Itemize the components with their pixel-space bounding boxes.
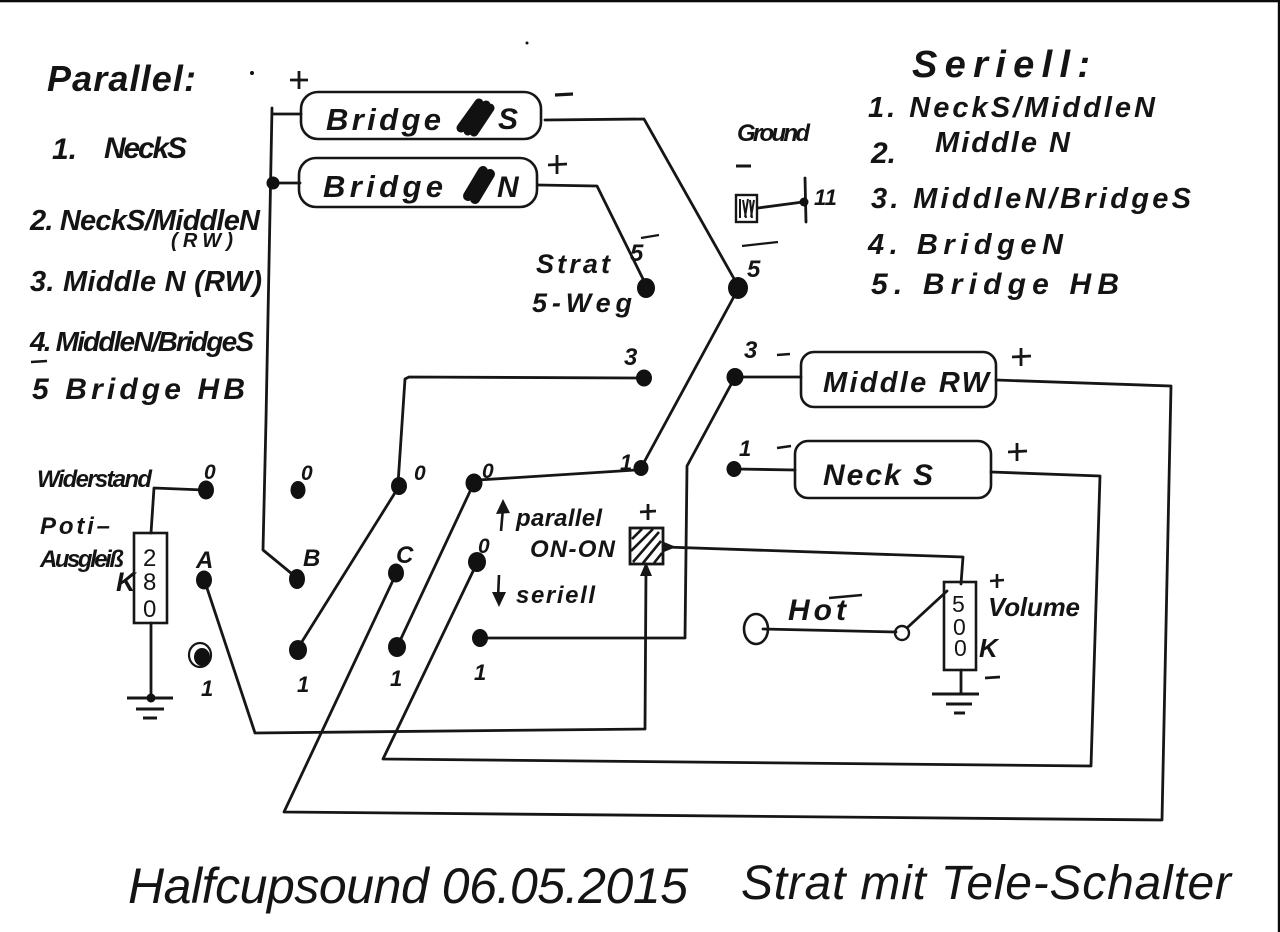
svg-text:Volume: Volume [988, 592, 1080, 622]
svg-text:K: K [979, 633, 1000, 663]
svg-text:3. Middle N (RW): 3. Middle N (RW) [30, 266, 262, 298]
svg-text:Hot: Hot [788, 594, 848, 627]
svg-text:0: 0 [954, 635, 967, 661]
svg-text:3. MiddleN/BridgeS: 3. MiddleN/BridgeS [871, 183, 1192, 215]
svg-text:A: A [195, 547, 213, 574]
svg-text:11: 11 [814, 185, 837, 210]
svg-text:S: S [498, 103, 518, 136]
svg-text:Bridge: Bridge [326, 102, 441, 137]
svg-text:parallel: parallel [515, 505, 603, 532]
svg-text:4. BridgeN: 4. BridgeN [867, 229, 1064, 261]
svg-text:0: 0 [478, 535, 490, 558]
svg-text:C: C [396, 542, 414, 569]
svg-text:ON-ON: ON-ON [530, 536, 616, 563]
svg-text:1: 1 [474, 660, 486, 685]
svg-text:NeckS: NeckS [104, 132, 187, 165]
svg-text:B: B [303, 545, 320, 572]
svg-text:Halfcupsound 06.05.2015: Halfcupsound 06.05.2015 [128, 858, 688, 914]
svg-text:1.: 1. [52, 133, 77, 166]
svg-text:Parallel:: Parallel: [47, 58, 196, 99]
svg-text:seriell: seriell [516, 582, 596, 609]
svg-text:1: 1 [297, 672, 309, 697]
svg-text:1: 1 [390, 666, 402, 691]
svg-text:Bridge: Bridge [323, 169, 443, 204]
svg-text:1: 1 [620, 450, 632, 475]
svg-text:3: 3 [624, 344, 638, 371]
svg-text:0: 0 [482, 460, 494, 483]
svg-text:2.: 2. [870, 137, 896, 170]
svg-text:5: 5 [747, 256, 761, 283]
svg-text:8: 8 [143, 569, 156, 596]
svg-text:1: 1 [201, 676, 213, 701]
svg-text:0: 0 [301, 462, 313, 485]
svg-text:Middle N: Middle N [935, 127, 1071, 159]
svg-text:5. Bridge HB: 5. Bridge HB [871, 268, 1119, 301]
svg-text:N: N [497, 171, 520, 204]
svg-text:1: 1 [739, 436, 751, 461]
svg-text:Strat mit Tele-Schalter: Strat mit Tele-Schalter [741, 857, 1233, 910]
svg-text:0: 0 [414, 462, 426, 485]
svg-text:Widerstand: Widerstand [37, 466, 153, 493]
svg-text:Neck S: Neck S [823, 459, 933, 492]
svg-text:0: 0 [143, 596, 156, 623]
svg-text:0: 0 [204, 461, 216, 484]
svg-text:3: 3 [744, 337, 758, 364]
svg-text:Ausgleiß: Ausgleiß [39, 546, 124, 573]
svg-text:4. MiddleN/BridgeS: 4. MiddleN/BridgeS [29, 326, 254, 357]
svg-text:2: 2 [143, 545, 156, 572]
svg-text:Ground: Ground [737, 120, 811, 147]
svg-text:5: 5 [630, 240, 644, 267]
